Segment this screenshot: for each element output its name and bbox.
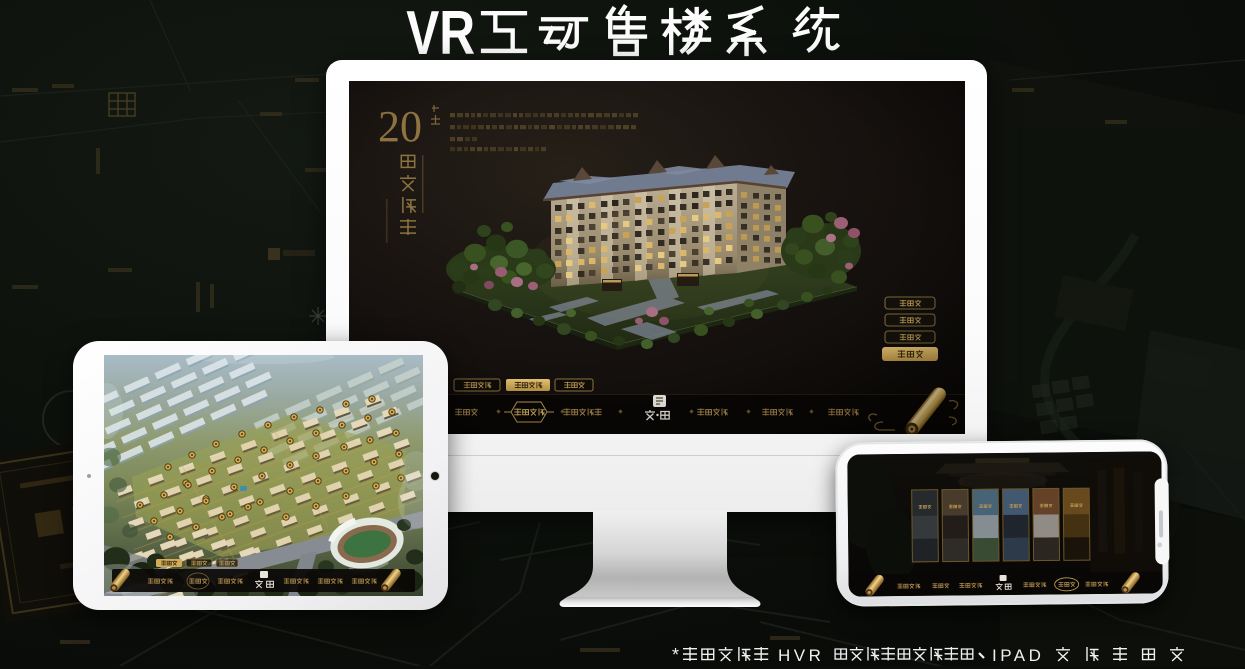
svg-text:IPAD: IPAD <box>992 646 1044 665</box>
svg-text:*: * <box>672 645 679 665</box>
svg-text:HVR: HVR <box>778 646 824 665</box>
svg-text:VR: VR <box>406 0 475 62</box>
